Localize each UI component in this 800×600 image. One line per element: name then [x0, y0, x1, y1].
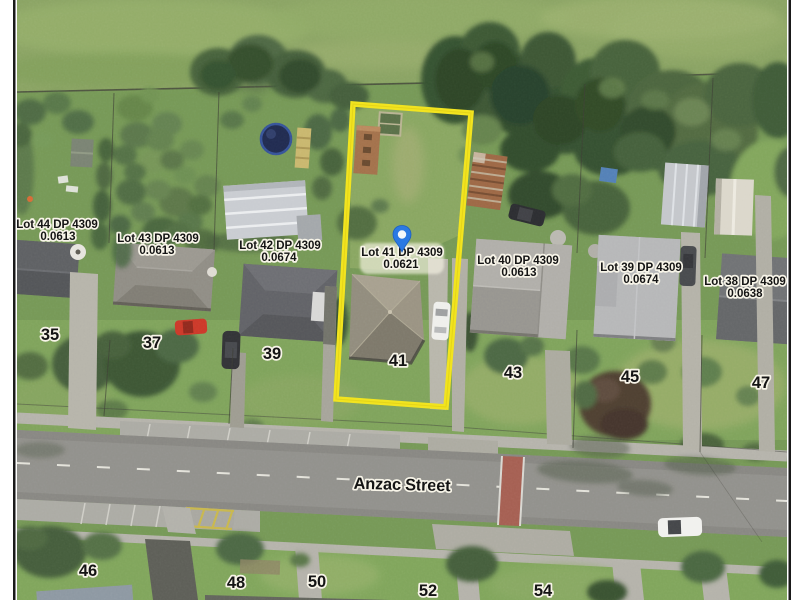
svg-text:0.0638: 0.0638	[727, 288, 763, 300]
svg-text:Lot 42 DP 4309: Lot 42 DP 4309	[239, 240, 321, 252]
svg-text:48: 48	[227, 574, 245, 592]
svg-text:Anzac Street: Anzac Street	[353, 475, 451, 496]
svg-text:43: 43	[504, 364, 522, 382]
svg-text:35: 35	[41, 326, 59, 344]
svg-text:Lot 40 DP 4309: Lot 40 DP 4309	[477, 255, 559, 267]
svg-text:54: 54	[534, 582, 553, 600]
svg-text:37: 37	[143, 334, 161, 352]
svg-text:0.0613: 0.0613	[139, 245, 174, 257]
svg-text:41: 41	[389, 352, 407, 370]
svg-text:0.0613: 0.0613	[40, 231, 75, 243]
svg-text:Lot 44 DP 4309: Lot 44 DP 4309	[16, 219, 98, 231]
svg-text:0.0674: 0.0674	[623, 274, 659, 286]
svg-text:39: 39	[263, 345, 281, 363]
svg-text:Lot 39 DP 4309: Lot 39 DP 4309	[600, 262, 682, 274]
svg-text:52: 52	[419, 582, 437, 600]
svg-text:47: 47	[752, 374, 770, 392]
svg-text:46: 46	[79, 562, 97, 580]
svg-text:Lot 43 DP 4309: Lot 43 DP 4309	[117, 233, 199, 245]
svg-text:45: 45	[621, 368, 639, 386]
svg-text:0.0613: 0.0613	[501, 267, 536, 279]
svg-text:0.0621: 0.0621	[383, 259, 419, 271]
svg-text:Lot 38 DP 4309: Lot 38 DP 4309	[704, 276, 786, 288]
svg-text:0.0674: 0.0674	[261, 252, 297, 264]
svg-text:50: 50	[308, 573, 326, 591]
